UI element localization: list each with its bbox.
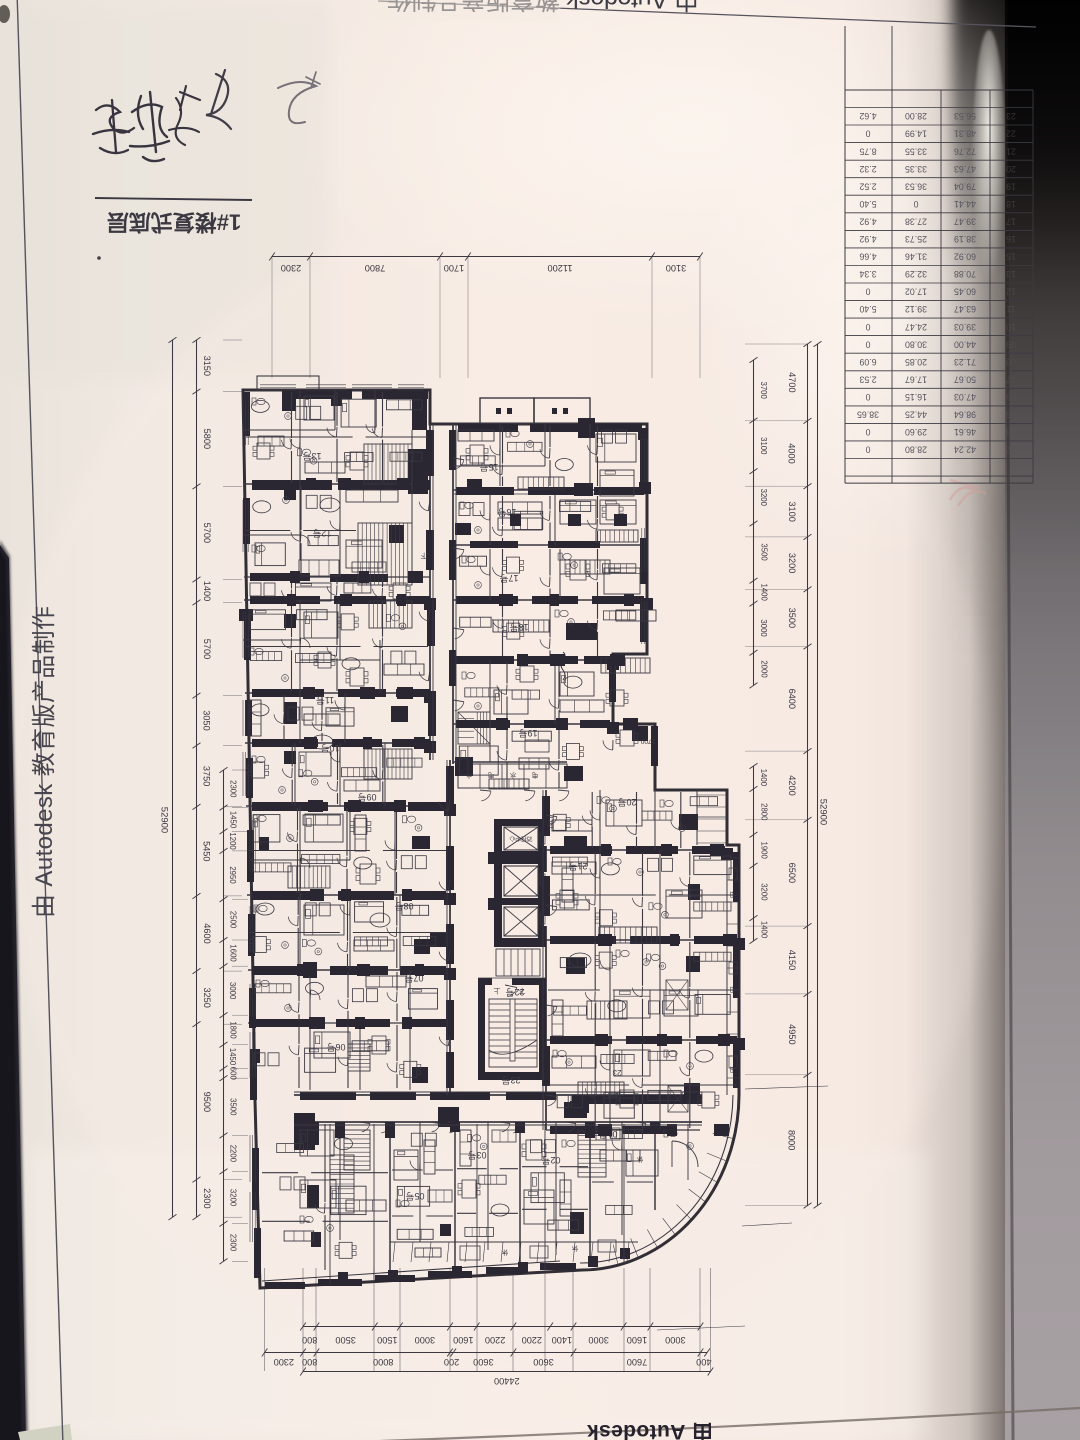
svg-text:42.24: 42.24 (954, 445, 976, 455)
svg-text:由 Autodesk 教育版产品制作: 由 Autodesk 教育版产品制作 (31, 606, 58, 918)
svg-text:1#楼复式底层: 1#楼复式底层 (107, 209, 241, 234)
svg-text:3150: 3150 (202, 356, 212, 376)
svg-text:4700: 4700 (787, 372, 797, 392)
svg-text:13: 13 (1006, 269, 1016, 279)
svg-text:25.73: 25.73 (905, 234, 927, 244)
svg-text:71.23: 71.23 (954, 357, 976, 367)
svg-text:08: 08 (1006, 357, 1016, 367)
svg-text:46.61: 46.61 (954, 427, 976, 437)
svg-text:由 Autodesk: 由 Autodesk (587, 1420, 713, 1440)
svg-text:4.66: 4.66 (859, 252, 876, 262)
svg-text:3250: 3250 (202, 987, 212, 1007)
svg-text:13号: 13号 (302, 451, 321, 461)
svg-text:5800: 5800 (202, 429, 212, 449)
svg-text:12: 12 (1006, 287, 1016, 297)
svg-text:47.03: 47.03 (954, 392, 976, 402)
svg-text:800: 800 (302, 1335, 317, 1345)
svg-text:48.31: 48.31 (954, 129, 976, 139)
svg-text:11: 11 (1006, 304, 1015, 314)
svg-text:17.67: 17.67 (905, 374, 927, 384)
svg-text:0: 0 (913, 199, 918, 209)
svg-text:52900: 52900 (818, 799, 829, 825)
svg-text:1400: 1400 (552, 1335, 572, 1345)
svg-text:0: 0 (865, 129, 870, 139)
svg-text:36.53: 36.53 (905, 181, 927, 191)
svg-text:44.41: 44.41 (954, 199, 976, 209)
svg-text:3500: 3500 (787, 608, 797, 628)
svg-text:21: 21 (1006, 146, 1016, 156)
svg-text:20.85: 20.85 (905, 357, 927, 367)
svg-text:19: 19 (1006, 181, 1016, 191)
svg-text:上: 上 (494, 987, 501, 996)
svg-text:1400: 1400 (759, 769, 768, 787)
svg-text:60.45: 60.45 (954, 287, 976, 297)
svg-text:20: 20 (1006, 164, 1016, 174)
svg-text:33.35: 33.35 (905, 164, 927, 174)
svg-text:1900: 1900 (759, 842, 768, 860)
svg-text:30.80: 30.80 (905, 339, 927, 349)
svg-text:1200: 1200 (228, 832, 237, 850)
svg-text:19号: 19号 (518, 728, 537, 738)
svg-text:5.40: 5.40 (859, 304, 876, 314)
svg-text:2200: 2200 (522, 1335, 542, 1345)
svg-text:9500: 9500 (202, 1092, 212, 1112)
svg-text:2500: 2500 (228, 911, 237, 929)
svg-text:22号: 22号 (505, 987, 524, 997)
svg-text:2800: 2800 (759, 803, 768, 821)
svg-text:63.47: 63.47 (954, 304, 976, 314)
svg-text:电: 电 (531, 772, 538, 781)
svg-text:44.25: 44.25 (905, 410, 927, 420)
svg-text:39.03: 39.03 (954, 322, 976, 332)
svg-text:79.04: 79.04 (954, 181, 976, 191)
svg-text:休: 休 (501, 1249, 508, 1258)
svg-text:17: 17 (1006, 217, 1016, 227)
svg-text:2200: 2200 (485, 1335, 505, 1345)
svg-text:0: 0 (865, 445, 870, 455)
svg-text:02: 02 (1006, 445, 1016, 455)
svg-text:3000: 3000 (665, 1335, 685, 1345)
svg-text:1450: 1450 (228, 1048, 237, 1066)
svg-text:2200: 2200 (228, 1145, 237, 1163)
svg-text:6400: 6400 (787, 689, 797, 709)
svg-text:4.62: 4.62 (859, 111, 876, 121)
svg-text:3100: 3100 (787, 501, 797, 521)
svg-text:05号: 05号 (405, 1191, 424, 1201)
svg-text:8000: 8000 (373, 1357, 393, 1367)
svg-text:38.19: 38.19 (954, 234, 976, 244)
svg-text:8.75: 8.75 (859, 146, 876, 156)
svg-text:3600: 3600 (473, 1357, 493, 1367)
svg-text:24400: 24400 (494, 1376, 520, 1386)
svg-text:3700: 3700 (759, 382, 768, 400)
svg-text:23: 23 (1006, 111, 1016, 121)
svg-text:56.53: 56.53 (954, 111, 976, 121)
svg-text:5700: 5700 (202, 523, 212, 543)
svg-text:1600: 1600 (627, 1335, 647, 1345)
svg-text:0: 0 (865, 287, 870, 297)
svg-text:2300: 2300 (274, 1357, 294, 1367)
svg-text:2.52: 2.52 (859, 181, 876, 191)
svg-text:下: 下 (421, 552, 428, 560)
svg-text:11200: 11200 (548, 263, 573, 273)
svg-text:28.00: 28.00 (905, 111, 927, 121)
svg-text:1600: 1600 (453, 1335, 473, 1345)
svg-text:2000: 2000 (759, 660, 768, 678)
svg-text:23号: 23号 (501, 1075, 520, 1085)
svg-text:4000: 4000 (787, 443, 797, 463)
svg-text:3750: 3750 (202, 766, 212, 786)
svg-text:60.92: 60.92 (954, 252, 976, 262)
svg-text:4950: 4950 (787, 1024, 797, 1044)
svg-text:1500: 1500 (377, 1335, 397, 1345)
svg-text:3500: 3500 (759, 543, 768, 561)
svg-text:33.55: 33.55 (905, 146, 927, 156)
svg-text:400: 400 (696, 1357, 711, 1367)
svg-text:5700: 5700 (202, 639, 212, 659)
svg-text:39.47: 39.47 (954, 217, 976, 227)
svg-text:11号: 11号 (316, 695, 334, 705)
svg-text:47.63: 47.63 (954, 164, 976, 174)
svg-text:3000: 3000 (759, 619, 768, 637)
svg-text:1700: 1700 (640, 738, 655, 745)
svg-text:6500: 6500 (787, 863, 797, 883)
svg-text:3000: 3000 (228, 982, 237, 1000)
svg-text:2300: 2300 (281, 263, 301, 273)
svg-text:12号: 12号 (312, 528, 331, 538)
svg-text:3000: 3000 (415, 1335, 435, 1345)
svg-text:3200: 3200 (228, 1189, 237, 1207)
svg-text:1400: 1400 (759, 921, 768, 939)
svg-text:4.92: 4.92 (859, 217, 876, 227)
svg-text:1400: 1400 (759, 584, 768, 602)
svg-text:休: 休 (571, 1245, 578, 1254)
svg-text:16: 16 (1006, 234, 1016, 244)
svg-text:2950: 2950 (228, 866, 237, 884)
svg-text:3200: 3200 (759, 489, 768, 507)
svg-text:800: 800 (302, 1357, 317, 1367)
svg-text:3050: 3050 (202, 710, 212, 730)
svg-text:39.12: 39.12 (905, 304, 927, 314)
svg-text:29.60: 29.60 (905, 427, 927, 437)
svg-text:4.92: 4.92 (859, 234, 876, 244)
svg-text:5450: 5450 (202, 841, 212, 861)
svg-text:28.80: 28.80 (905, 445, 927, 455)
svg-text:1700: 1700 (444, 263, 464, 273)
svg-text:31.46: 31.46 (905, 252, 927, 262)
svg-text:32.29: 32.29 (905, 269, 927, 279)
svg-text:1450: 1450 (228, 811, 237, 829)
svg-text:3500: 3500 (228, 1098, 237, 1116)
svg-text:5.40: 5.40 (859, 199, 876, 209)
svg-text:72.76: 72.76 (954, 146, 976, 156)
svg-text:05: 05 (1006, 410, 1016, 420)
svg-text:10: 10 (1006, 322, 1016, 332)
svg-text:0: 0 (865, 392, 870, 402)
svg-text:7800: 7800 (365, 263, 385, 273)
svg-text:2300: 2300 (228, 1234, 237, 1252)
svg-text:0: 0 (865, 339, 870, 349)
svg-text:3100: 3100 (759, 437, 768, 455)
svg-text:22: 22 (1006, 129, 1016, 139)
svg-text:44.00: 44.00 (954, 339, 976, 349)
svg-text:3600: 3600 (533, 1357, 553, 1367)
svg-text:18: 18 (1006, 199, 1016, 209)
svg-text:3200: 3200 (787, 553, 797, 573)
svg-text:52900: 52900 (159, 807, 170, 833)
svg-text:0: 0 (865, 322, 870, 332)
svg-text:消控中心: 消控中心 (509, 835, 532, 843)
svg-text:27.38: 27.38 (905, 217, 927, 227)
svg-text:14.99: 14.99 (905, 129, 927, 139)
svg-text:4600: 4600 (202, 923, 212, 943)
svg-text:8000: 8000 (787, 1130, 797, 1150)
svg-text:4150: 4150 (787, 950, 797, 970)
svg-text:1600: 1600 (228, 944, 237, 962)
svg-text:20号: 20号 (617, 797, 636, 807)
svg-text:02号: 02号 (541, 1155, 560, 1165)
svg-text:07: 07 (1006, 374, 1016, 384)
svg-text:4200: 4200 (787, 775, 797, 795)
svg-text:200: 200 (444, 1357, 459, 1367)
svg-text:3500: 3500 (335, 1335, 355, 1345)
svg-text:15号: 15号 (479, 462, 498, 472)
svg-text:1400: 1400 (202, 581, 212, 601)
svg-text:2.32: 2.32 (859, 164, 876, 174)
svg-text:2300: 2300 (202, 1188, 212, 1208)
svg-text:24.47: 24.47 (905, 322, 927, 332)
svg-text:2.53: 2.53 (859, 374, 876, 384)
svg-text:70.88: 70.88 (954, 269, 976, 279)
svg-text:3100: 3100 (666, 263, 686, 273)
svg-text:03: 03 (1006, 427, 1016, 437)
svg-text:6.09: 6.09 (859, 357, 876, 367)
svg-text:06: 06 (1006, 392, 1016, 402)
svg-text:16.15: 16.15 (905, 392, 927, 402)
svg-text:17.02: 17.02 (905, 287, 927, 297)
svg-text:38.65: 38.65 (857, 410, 879, 420)
svg-text:7600: 7600 (627, 1357, 647, 1367)
svg-text:09: 09 (1006, 339, 1016, 349)
svg-text:2300: 2300 (228, 780, 237, 798)
svg-text:10号: 10号 (320, 743, 339, 753)
svg-text:3.34: 3.34 (859, 269, 876, 279)
svg-text:15: 15 (1006, 252, 1016, 262)
svg-text:3200: 3200 (759, 883, 768, 901)
svg-text:98.64: 98.64 (954, 410, 976, 420)
svg-text:50.67: 50.67 (954, 374, 976, 384)
svg-text:0: 0 (865, 427, 870, 437)
svg-text:3000: 3000 (588, 1335, 608, 1345)
